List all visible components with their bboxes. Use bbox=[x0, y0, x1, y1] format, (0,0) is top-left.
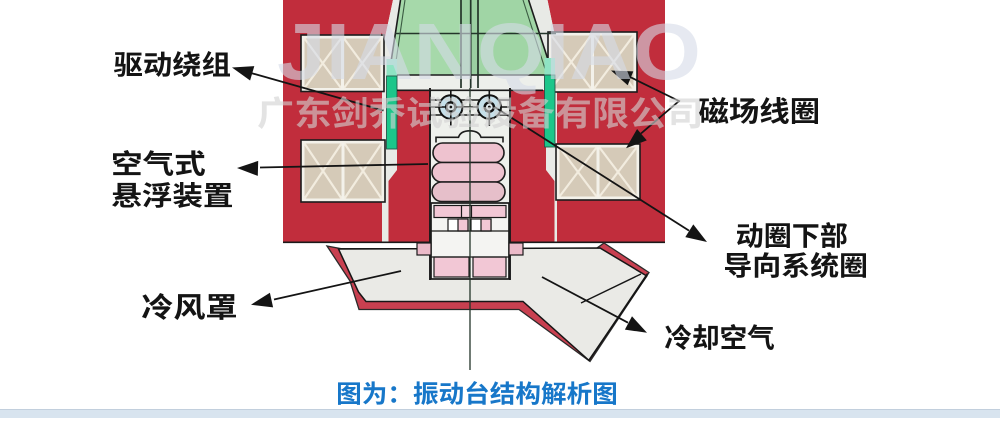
svg-text:JIANQIAO: JIANQIAO bbox=[277, 7, 701, 96]
